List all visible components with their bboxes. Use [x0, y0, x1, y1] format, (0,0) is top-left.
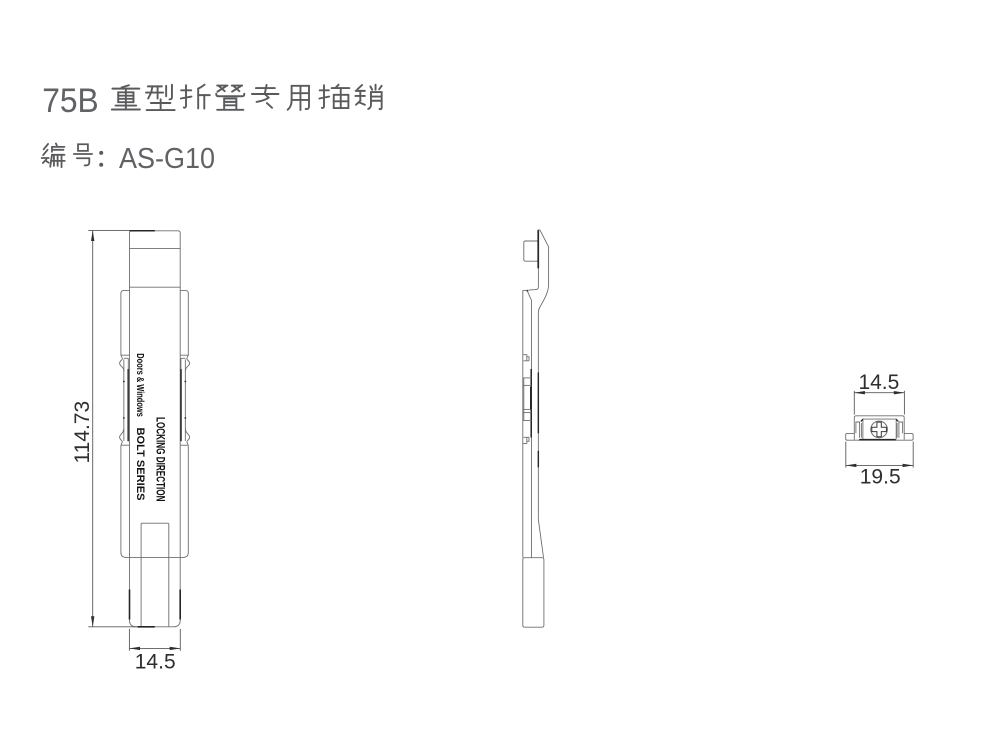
svg-text:114.73: 114.73 — [71, 401, 94, 464]
svg-text:AS-G10: AS-G10 — [119, 143, 215, 175]
svg-text:14.5: 14.5 — [858, 371, 899, 394]
svg-text:75B: 75B — [42, 82, 98, 120]
svg-text:14.5: 14.5 — [135, 651, 176, 674]
svg-text:BOLT SERIES: BOLT SERIES — [134, 428, 146, 501]
svg-text:19.5: 19.5 — [860, 466, 901, 489]
svg-text:Doors & Windows: Doors & Windows — [134, 353, 145, 417]
svg-text:LOCKING DIRECTION: LOCKING DIRECTION — [154, 417, 168, 502]
